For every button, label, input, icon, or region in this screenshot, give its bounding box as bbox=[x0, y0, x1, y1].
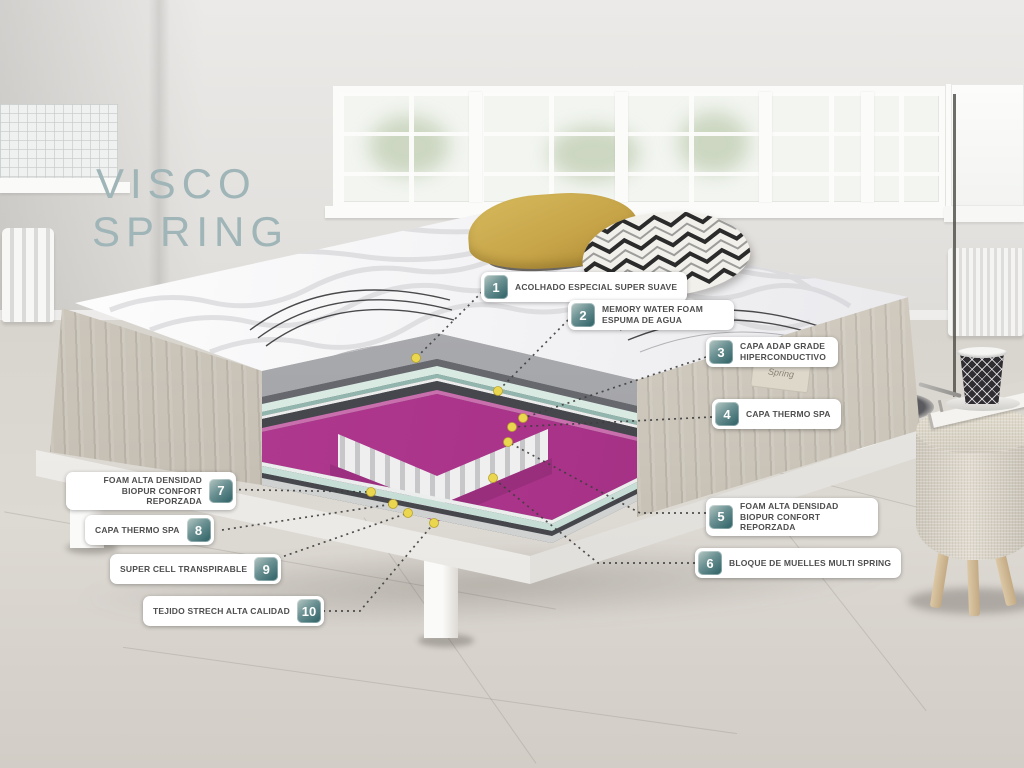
window-mullion bbox=[469, 92, 482, 202]
radiator-right bbox=[948, 248, 1024, 336]
callout-5-label: FOAM ALTA DENSIDAD BIOPUR CONFORT REPORZ… bbox=[740, 501, 868, 533]
window-mullion bbox=[759, 92, 772, 202]
callout-9-number: 9 bbox=[254, 557, 278, 581]
callout-6: 6 BLOQUE DE MUELLES MULTI SPRING bbox=[695, 548, 901, 578]
callout-8-number: 8 bbox=[187, 518, 211, 542]
right-window bbox=[946, 84, 1024, 206]
callout-2-label: MEMORY WATER FOAM ESPUMA DE AGUA bbox=[602, 304, 724, 325]
radiator-left bbox=[2, 228, 54, 322]
callout-6-number: 6 bbox=[698, 551, 722, 575]
window-mullion bbox=[615, 92, 628, 202]
callout-1-number: 1 bbox=[484, 275, 508, 299]
callout-9: 9 SUPER CELL TRANSPIRABLE bbox=[110, 554, 281, 584]
callout-7-label: FOAM ALTA DENSIDAD BIOPUR CONFORT REPORZ… bbox=[76, 475, 202, 507]
page-title: VISCO SPRING bbox=[96, 160, 289, 256]
callout-6-label: BLOQUE DE MUELLES MULTI SPRING bbox=[729, 558, 891, 569]
mug-rim bbox=[957, 347, 1007, 358]
mug-diamond-pattern bbox=[958, 352, 1006, 404]
callout-4-number: 4 bbox=[715, 402, 739, 426]
callout-7-number: 7 bbox=[209, 479, 233, 503]
window-grid bbox=[339, 92, 939, 202]
callout-3-label: CAPA ADAP GRADE HIPERCONDUCTIVO bbox=[740, 341, 828, 362]
mattress-infographic: VISCO SPRING bbox=[0, 0, 1024, 768]
mug bbox=[958, 352, 1006, 404]
callout-7: 7 FOAM ALTA DENSIDAD BIOPUR CONFORT REPO… bbox=[66, 472, 236, 510]
stool-leg bbox=[967, 556, 980, 616]
callout-10-label: TEJIDO STRECH ALTA CALIDAD bbox=[153, 606, 290, 617]
title-line-1: VISCO bbox=[96, 160, 289, 208]
callout-4-label: CAPA THERMO SPA bbox=[746, 409, 831, 420]
callout-8-label: CAPA THERMO SPA bbox=[95, 525, 180, 536]
right-window-sill bbox=[944, 206, 1024, 222]
callout-2: 2 MEMORY WATER FOAM ESPUMA DE AGUA bbox=[568, 300, 734, 330]
callout-4: 4 CAPA THERMO SPA bbox=[712, 399, 841, 429]
window-mullion bbox=[861, 92, 874, 202]
title-line-2: SPRING bbox=[92, 208, 289, 256]
callout-2-number: 2 bbox=[571, 303, 595, 327]
callout-1: 1 ACOLHADO ESPECIAL SUPER SUAVE bbox=[481, 272, 687, 302]
callout-5: 5 FOAM ALTA DENSIDAD BIOPUR CONFORT REPO… bbox=[706, 498, 878, 536]
callout-9-label: SUPER CELL TRANSPIRABLE bbox=[120, 564, 247, 575]
callout-3-number: 3 bbox=[709, 340, 733, 364]
callout-8: 8 CAPA THERMO SPA bbox=[85, 515, 214, 545]
main-window bbox=[333, 86, 945, 208]
callout-5-number: 5 bbox=[709, 505, 733, 529]
callout-10-number: 10 bbox=[297, 599, 321, 623]
callout-10: 10 TEJIDO STRECH ALTA CALIDAD bbox=[143, 596, 324, 626]
callout-3: 3 CAPA ADAP GRADE HIPERCONDUCTIVO bbox=[706, 337, 838, 367]
callout-1-label: ACOLHADO ESPECIAL SUPER SUAVE bbox=[515, 282, 677, 293]
